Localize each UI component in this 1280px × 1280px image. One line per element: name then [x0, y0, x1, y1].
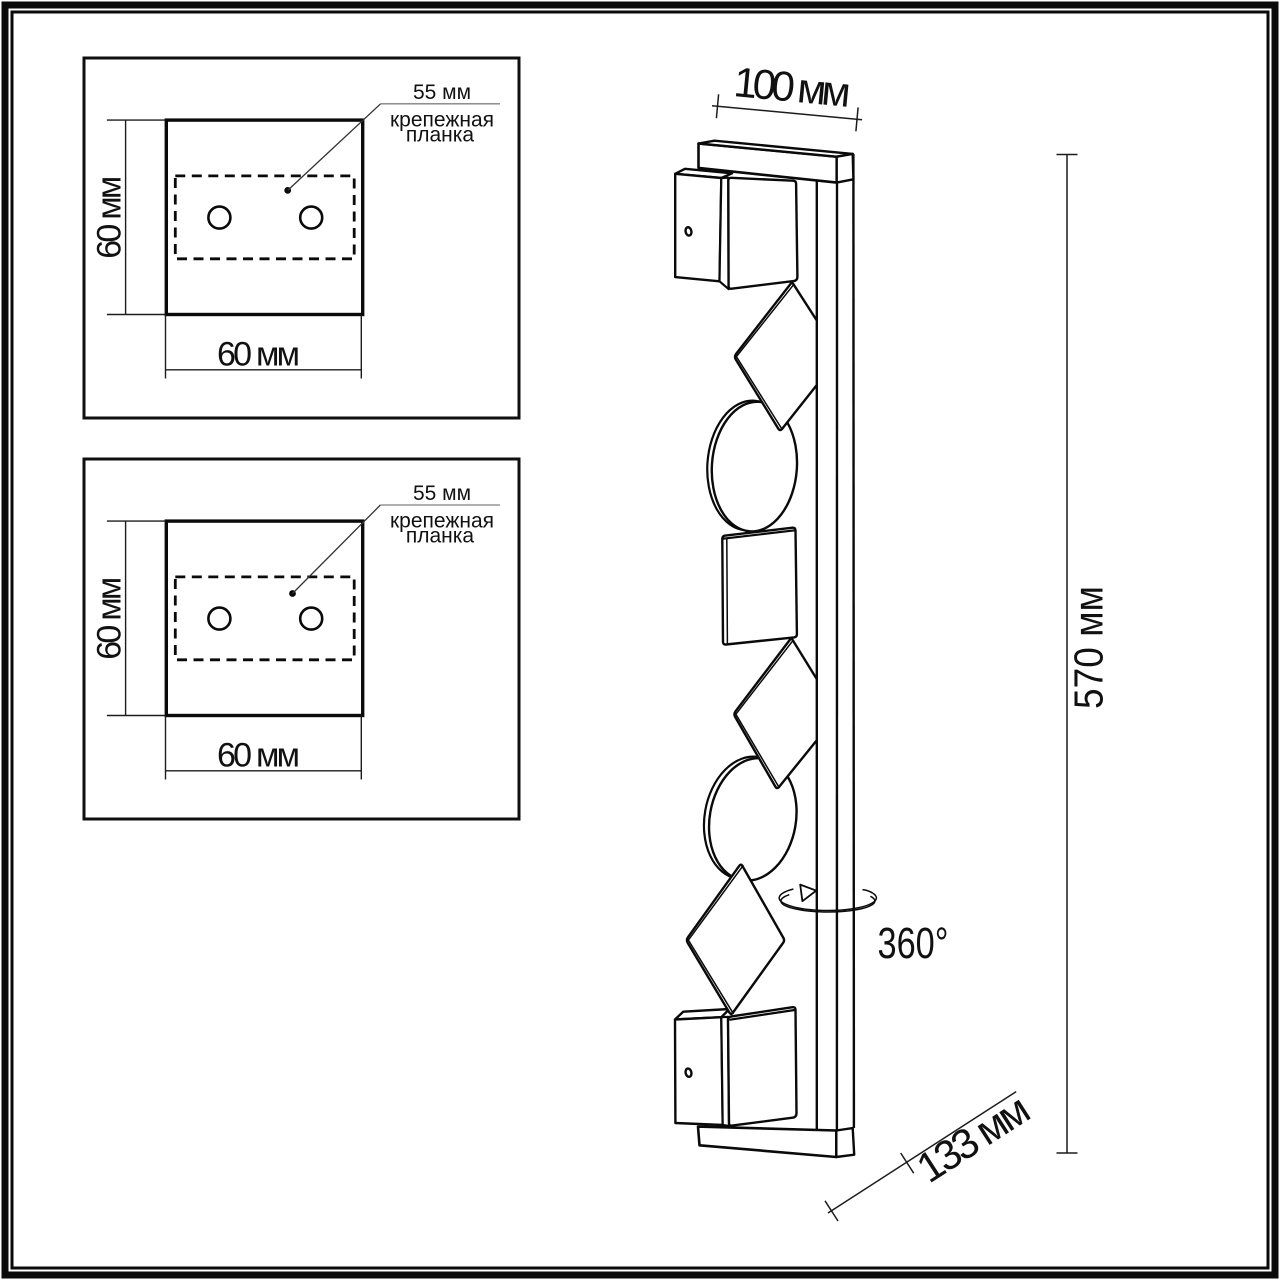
svg-text:60 мм: 60 мм: [217, 336, 300, 374]
svg-text:360°: 360°: [878, 919, 949, 968]
svg-text:60 мм: 60 мм: [91, 577, 129, 660]
svg-text:570 мм: 570 мм: [1066, 586, 1112, 709]
svg-text:планка: планка: [406, 124, 475, 147]
svg-text:55 мм: 55 мм: [413, 482, 471, 505]
svg-text:55 мм: 55 мм: [413, 81, 471, 104]
svg-text:планка: планка: [406, 525, 475, 548]
svg-text:60 мм: 60 мм: [91, 176, 129, 259]
svg-text:60 мм: 60 мм: [217, 737, 300, 775]
